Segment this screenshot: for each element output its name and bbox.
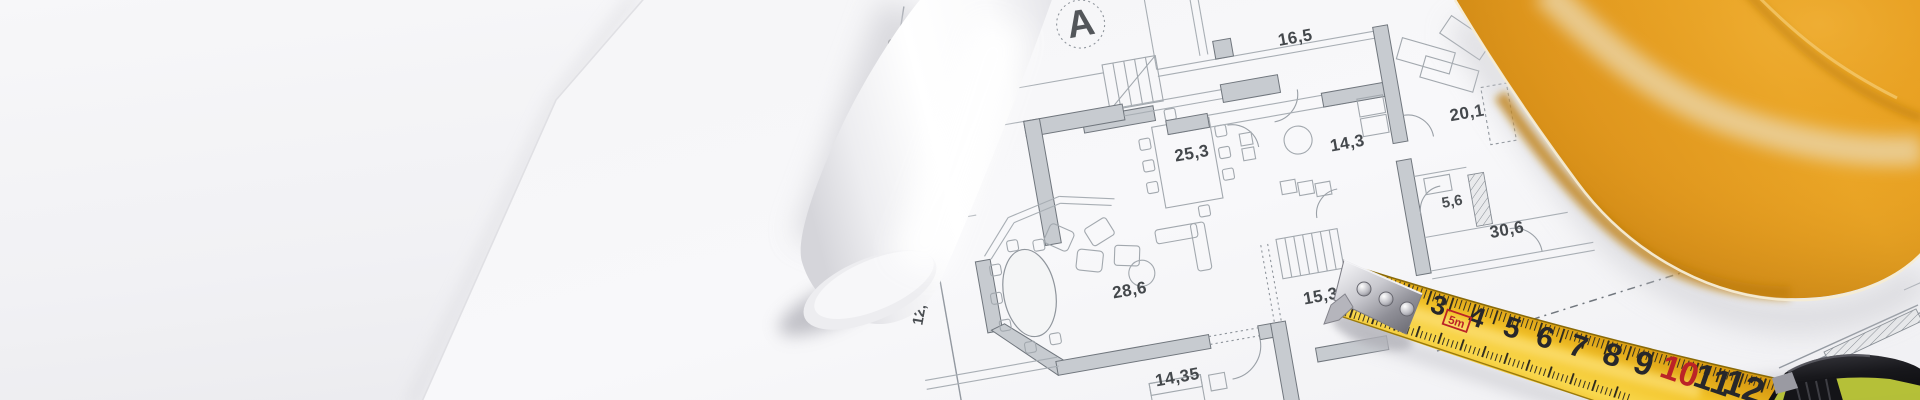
hero-art: A 5,36	[0, 0, 1920, 400]
construction-blueprint-hero: A 5,36	[0, 0, 1920, 400]
hook-rivet-3	[1400, 302, 1414, 316]
hook-rivet-1	[1357, 282, 1371, 296]
hook-rivet-2	[1379, 292, 1393, 306]
dimension-label-56: 5,6	[1440, 192, 1463, 212]
